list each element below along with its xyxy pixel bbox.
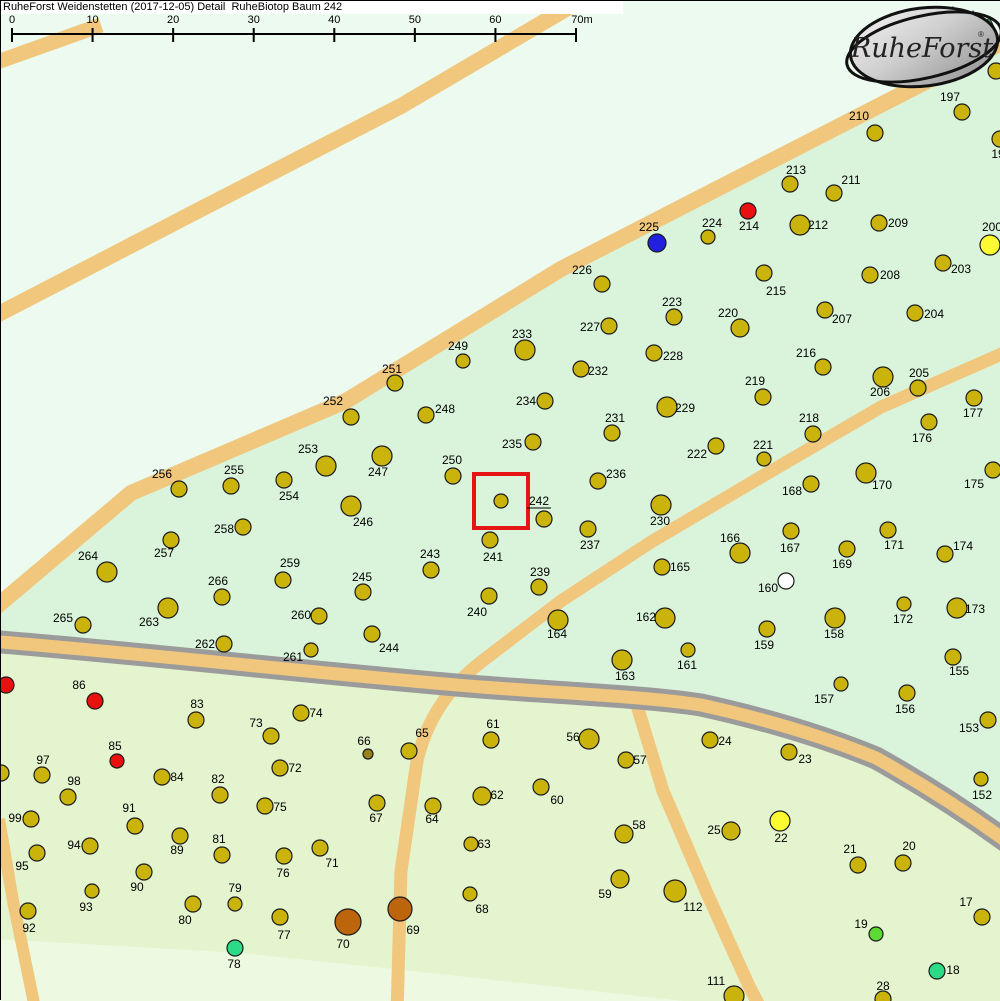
tree-dot[interactable]	[826, 185, 842, 201]
tree-label: 233	[512, 327, 532, 341]
tree-dot[interactable]	[87, 693, 103, 709]
tree-dot[interactable]	[664, 880, 686, 902]
tree-label: 161	[677, 658, 697, 672]
tree-label: 156	[895, 702, 915, 716]
tree-label: 234	[516, 394, 536, 408]
tree-dot[interactable]	[722, 822, 740, 840]
tree-dot[interactable]	[730, 543, 750, 563]
tree-dot[interactable]	[343, 409, 359, 425]
tree-dot[interactable]	[740, 203, 756, 219]
tree-dot[interactable]	[980, 235, 1000, 255]
tree-label: 212	[808, 218, 828, 232]
tree-label: 25	[707, 823, 721, 837]
tree-label: 221	[753, 438, 773, 452]
tree-label: 258	[214, 522, 234, 536]
tree-dot[interactable]	[29, 845, 45, 861]
tree-dot[interactable]	[293, 705, 309, 721]
tree-label: 17	[959, 895, 973, 909]
tree-label: 21	[843, 842, 857, 856]
tree-dot[interactable]	[681, 643, 695, 657]
tree-label: 61	[486, 717, 500, 731]
tree-dot[interactable]	[97, 562, 117, 582]
tree-label: 59	[598, 887, 612, 901]
logo-text: RuheForst	[850, 33, 993, 64]
tree-label: 91	[122, 801, 136, 815]
tree-dot[interactable]	[783, 523, 799, 539]
tree-dot[interactable]	[778, 573, 794, 589]
tree-label: 97	[36, 753, 50, 767]
tree-dot[interactable]	[34, 767, 50, 783]
tree-label: 172	[893, 612, 913, 626]
tree-label: 82	[211, 772, 225, 786]
tree-dot[interactable]	[75, 617, 91, 633]
tree-dot[interactable]	[648, 234, 666, 252]
tree-dot[interactable]	[867, 125, 883, 141]
tree-label: 237	[580, 538, 600, 552]
tree-label: 99	[8, 811, 22, 825]
tree-dot[interactable]	[850, 857, 866, 873]
tree-label: 265	[53, 611, 73, 625]
tree-dot[interactable]	[364, 626, 380, 642]
tree-dot[interactable]	[594, 276, 610, 292]
tree-label: 218	[799, 411, 819, 425]
tree-label: 223	[662, 295, 682, 309]
tree-label: 242	[529, 494, 549, 508]
tree-dot[interactable]	[276, 472, 292, 488]
tree-label: 247	[368, 465, 388, 479]
tree-label: 177	[963, 406, 983, 420]
tree-dot[interactable]	[276, 848, 292, 864]
tree-dot[interactable]	[188, 712, 204, 728]
tree-label: 248	[435, 402, 455, 416]
tree-label: 264	[78, 549, 98, 563]
tree-label: 86	[72, 678, 86, 692]
tree-dot[interactable]	[275, 572, 291, 588]
tree-label: 75	[273, 800, 287, 814]
tree-label: 213	[786, 163, 806, 177]
tree-dot[interactable]	[817, 302, 833, 318]
tree-label: 214	[739, 219, 759, 233]
tree-label: 245	[352, 570, 372, 584]
tree-label: 18	[946, 963, 960, 977]
tree-label: 209	[888, 216, 908, 230]
tree-label: 74	[309, 706, 323, 720]
tree-label: 222	[687, 447, 707, 461]
tree-label: 164	[547, 627, 567, 641]
tree-dot[interactable]	[966, 390, 982, 406]
tree-label: 60	[550, 793, 564, 807]
tree-label: 225	[639, 220, 659, 234]
tree-dot[interactable]	[651, 495, 671, 515]
tree-label: 251	[382, 362, 402, 376]
tree-label: 241	[483, 550, 503, 564]
tree-dot[interactable]	[136, 864, 152, 880]
tree-label: 93	[79, 900, 93, 914]
tree-dot[interactable]	[937, 546, 953, 562]
tree-dot[interactable]	[463, 887, 477, 901]
tree-dot[interactable]	[770, 811, 790, 831]
tree-dot[interactable]	[974, 772, 988, 786]
tree-label: 90	[130, 880, 144, 894]
tree-label: 263	[139, 615, 159, 629]
tree-label: 162	[636, 610, 656, 624]
tree-label: 76	[276, 866, 290, 880]
tree-dot[interactable]	[899, 685, 915, 701]
tree-dot[interactable]	[724, 986, 744, 1001]
tree-label: 28	[876, 979, 890, 993]
tree-dot[interactable]	[839, 541, 855, 557]
tree-dot[interactable]	[945, 649, 961, 665]
tree-dot[interactable]	[214, 589, 230, 605]
tree-dot[interactable]	[214, 847, 230, 863]
tree-label: 211	[841, 173, 860, 187]
tree-dot[interactable]	[223, 478, 239, 494]
scale-tick-label: 0	[9, 14, 15, 26]
scale-tick-label: 20	[167, 14, 179, 26]
tree-dot[interactable]	[216, 636, 232, 652]
tree-dot[interactable]	[756, 265, 772, 281]
tree-dot[interactable]	[341, 496, 361, 516]
tree-dot[interactable]	[604, 425, 620, 441]
tree-dot[interactable]	[895, 855, 911, 871]
tree-label: 65	[415, 726, 429, 740]
tree-label: 174	[953, 539, 973, 553]
tree-dot[interactable]	[272, 909, 288, 925]
tree-label: 167	[780, 541, 800, 555]
tree-dot[interactable]	[515, 340, 535, 360]
tree-dot[interactable]	[481, 588, 497, 604]
tree-label: 163	[615, 669, 635, 683]
tree-dot[interactable]	[185, 896, 201, 912]
tree-label: 206	[870, 385, 890, 399]
tree-dot[interactable]	[418, 407, 434, 423]
tree-label: 70	[336, 937, 350, 951]
tree-dot[interactable]	[158, 598, 178, 618]
tree-label: 230	[650, 514, 670, 528]
tree-dot[interactable]	[401, 743, 417, 759]
tree-label: 68	[475, 902, 489, 916]
tree-dot[interactable]	[701, 230, 715, 244]
scale-tick-label: 60	[489, 14, 501, 26]
tree-label: 155	[949, 664, 969, 678]
tree-label: 266	[208, 574, 228, 588]
tree-dot[interactable]	[869, 927, 883, 941]
tree-label: 235	[502, 437, 522, 451]
tree-dot[interactable]	[227, 940, 243, 956]
tree-dot[interactable]	[110, 754, 124, 768]
tree-label: 111	[707, 974, 726, 988]
tree-dot[interactable]	[731, 319, 749, 337]
tree-dot[interactable]	[372, 446, 392, 466]
tree-dot[interactable]	[257, 798, 273, 814]
tree-dot[interactable]	[228, 897, 242, 911]
tree-dot[interactable]	[782, 176, 798, 192]
tree-dot[interactable]	[172, 828, 188, 844]
tree-label: 216	[796, 346, 816, 360]
tree-dot[interactable]	[825, 608, 845, 628]
tree-label: 64	[425, 812, 439, 826]
tree-dot[interactable]	[304, 643, 318, 657]
tree-label: 57	[633, 753, 647, 767]
logo-registered-mark: ®	[978, 30, 984, 39]
tree-dot[interactable]	[494, 494, 508, 508]
map-title: RuheForst Weidenstetten (2017-12-05) Det…	[1, 1, 623, 14]
tree-label: 58	[632, 818, 646, 832]
tree-label: 243	[420, 547, 440, 561]
tree-dot[interactable]	[1, 677, 14, 693]
tree-label: 152	[972, 788, 992, 802]
tree-label: 56	[566, 730, 580, 744]
tree-label: 257	[154, 546, 174, 560]
tree-dot[interactable]	[611, 870, 629, 888]
tree-label: 166	[720, 531, 740, 545]
tree-dot[interactable]	[536, 511, 552, 527]
tree-label: 255	[224, 463, 244, 477]
tree-dot[interactable]	[974, 909, 990, 925]
scale-tick-label: 30	[248, 14, 260, 26]
tree-dot[interactable]	[388, 897, 412, 921]
tree-dot[interactable]	[573, 361, 589, 377]
tree-label: 261	[283, 650, 303, 664]
tree-label: 224	[702, 216, 722, 230]
tree-dot[interactable]	[20, 903, 36, 919]
tree-dot[interactable]	[873, 367, 893, 387]
tree-dot[interactable]	[533, 779, 549, 795]
tree-label: 170	[872, 478, 892, 492]
tree-dot[interactable]	[921, 414, 937, 430]
tree-label: 203	[951, 262, 971, 276]
tree-label: 168	[782, 484, 802, 498]
tree-label: 200	[982, 220, 1000, 234]
tree-label: 239	[530, 565, 550, 579]
tree-label: 79	[228, 881, 242, 895]
tree-label: 215	[766, 284, 786, 298]
tree-dot[interactable]	[387, 375, 403, 391]
tree-dot[interactable]	[85, 884, 99, 898]
tree-dot[interactable]	[834, 677, 848, 691]
tree-label: 19	[991, 147, 1000, 161]
tree-dot[interactable]	[803, 476, 819, 492]
scale-tick-label: 10	[86, 14, 98, 26]
tree-label: 210	[849, 109, 869, 123]
tree-label: 63	[477, 837, 491, 851]
tree-dot[interactable]	[316, 456, 336, 476]
tree-dot[interactable]	[755, 389, 771, 405]
tree-dot[interactable]	[655, 608, 675, 628]
tree-dot[interactable]	[579, 729, 599, 749]
scale-tick-label: 70m	[571, 14, 592, 26]
tree-label: 159	[754, 638, 774, 652]
tree-dot[interactable]	[929, 963, 945, 979]
tree-dot[interactable]	[369, 795, 385, 811]
tree-label: 254	[279, 489, 299, 503]
tree-dot[interactable]	[666, 309, 682, 325]
scale-tick-label: 50	[409, 14, 421, 26]
tree-dot[interactable]	[935, 255, 951, 271]
tree-label: 81	[212, 832, 226, 846]
tree-dot[interactable]	[910, 380, 926, 396]
tree-dot[interactable]	[525, 434, 541, 450]
tree-dot[interactable]	[482, 532, 498, 548]
tree-dot[interactable]	[263, 728, 279, 744]
tree-dot[interactable]	[154, 769, 170, 785]
tree-label: 22	[774, 831, 788, 845]
tree-dot[interactable]	[759, 621, 775, 637]
tree-label: 112	[683, 900, 702, 914]
tree-label: 207	[832, 312, 852, 326]
tree-label: 157	[814, 692, 834, 706]
tree-label: 226	[572, 263, 592, 277]
tree-dot[interactable]	[580, 521, 596, 537]
map-canvas[interactable]: 1971921021321121422422521220920022620820…	[1, 1, 1000, 1001]
tree-dot[interactable]	[985, 462, 1000, 478]
tree-label: 72	[288, 761, 302, 775]
tree-dot[interactable]	[23, 811, 39, 827]
tree-dot[interactable]	[897, 597, 911, 611]
tree-dot[interactable]	[871, 215, 887, 231]
tree-label: 229	[675, 401, 695, 415]
tree-label: 197	[940, 90, 960, 104]
tree-label: 171	[884, 538, 904, 552]
tree-dot[interactable]	[335, 909, 361, 935]
tree-dot[interactable]	[537, 393, 553, 409]
tree-label: 176	[912, 431, 932, 445]
tree-label: 259	[280, 556, 300, 570]
tree-dot[interactable]	[456, 354, 470, 368]
tree-label: 169	[832, 557, 852, 571]
tree-label: 158	[824, 627, 844, 641]
tree-label: 244	[379, 641, 399, 655]
tree-label: 227	[580, 320, 600, 334]
tree-label: 85	[108, 739, 122, 753]
tree-label: 62	[490, 788, 504, 802]
tree-dot[interactable]	[312, 840, 328, 856]
tree-label: 249	[448, 339, 468, 353]
tree-label: 220	[718, 306, 738, 320]
tree-dot[interactable]	[757, 452, 771, 466]
tree-label: 175	[964, 477, 984, 491]
tree-dot[interactable]	[355, 584, 371, 600]
tree-dot[interactable]	[601, 318, 617, 334]
tree-dot[interactable]	[615, 825, 633, 843]
tree-label: 153	[959, 721, 979, 735]
tree-dot[interactable]	[815, 359, 831, 375]
tree-dot[interactable]	[272, 760, 288, 776]
tree-dot[interactable]	[880, 522, 896, 538]
tree-dot[interactable]	[445, 468, 461, 484]
tree-dot[interactable]	[82, 838, 98, 854]
tree-label: 95	[15, 859, 29, 873]
map-window: { "header": { "title": "RuheForst Weiden…	[0, 0, 1000, 1000]
tree-label: 94	[67, 838, 81, 852]
tree-dot[interactable]	[907, 305, 923, 321]
tree-label: 240	[467, 605, 487, 619]
tree-label: 80	[178, 913, 192, 927]
tree-label: 204	[924, 307, 944, 321]
scale-tick-label: 40	[328, 14, 340, 26]
tree-dot[interactable]	[805, 426, 821, 442]
tree-dot[interactable]	[862, 267, 878, 283]
tree-label: 219	[745, 374, 765, 388]
tree-label: 173	[965, 602, 985, 616]
tree-dot[interactable]	[363, 749, 373, 759]
tree-dot[interactable]	[212, 787, 228, 803]
tree-label: 67	[369, 811, 383, 825]
tree-dot[interactable]	[473, 787, 491, 805]
tree-label: 78	[227, 957, 241, 971]
tree-label: 73	[249, 716, 263, 730]
tree-label: 256	[152, 467, 172, 481]
tree-label: 253	[298, 442, 318, 456]
tree-label: 236	[606, 467, 626, 481]
tree-label: 24	[718, 734, 732, 748]
tree-dot[interactable]	[531, 579, 547, 595]
tree-dot[interactable]	[618, 752, 634, 768]
tree-label: 84	[170, 770, 184, 784]
tree-label: 205	[909, 366, 929, 380]
tree-label: 89	[170, 843, 184, 857]
tree-dot[interactable]	[590, 473, 606, 489]
tree-dot[interactable]	[612, 650, 632, 670]
tree-label: 228	[663, 349, 683, 363]
tree-dot[interactable]	[127, 818, 143, 834]
tree-dot[interactable]	[235, 519, 251, 535]
tree-dot[interactable]	[980, 712, 996, 728]
tree-dot[interactable]	[646, 345, 662, 361]
tree-dot[interactable]	[654, 559, 670, 575]
tree-label: 232	[588, 364, 608, 378]
tree-label: 246	[353, 515, 373, 529]
tree-label: 20	[902, 839, 916, 853]
tree-label: 252	[323, 394, 343, 408]
tree-label: 69	[406, 923, 420, 937]
tree-label: 66	[357, 734, 371, 748]
tree-label: 23	[798, 752, 812, 766]
tree-label: 231	[605, 411, 625, 425]
tree-dot[interactable]	[781, 744, 797, 760]
tree-label: 98	[67, 774, 81, 788]
tree-dot[interactable]	[702, 732, 718, 748]
tree-label: 250	[442, 453, 462, 467]
tree-label: 92	[22, 921, 36, 935]
tree-label: 19	[854, 917, 868, 931]
tree-dot[interactable]	[60, 789, 76, 805]
tree-dot[interactable]	[988, 63, 1000, 79]
tree-label: 77	[277, 928, 291, 942]
tree-dot[interactable]	[954, 104, 970, 120]
tree-dot[interactable]	[311, 608, 327, 624]
tree-dot[interactable]	[464, 837, 478, 851]
tree-dot[interactable]	[483, 732, 499, 748]
tree-dot[interactable]	[708, 438, 724, 454]
tree-dot[interactable]	[423, 562, 439, 578]
tree-label: 165	[670, 560, 690, 574]
tree-label: 262	[195, 637, 215, 651]
tree-dot[interactable]	[171, 481, 187, 497]
tree-label: 71	[325, 856, 339, 870]
tree-label: 83	[190, 697, 204, 711]
tree-label: 260	[291, 608, 311, 622]
tree-label: 208	[880, 268, 900, 282]
tree-label: 160	[758, 581, 778, 595]
